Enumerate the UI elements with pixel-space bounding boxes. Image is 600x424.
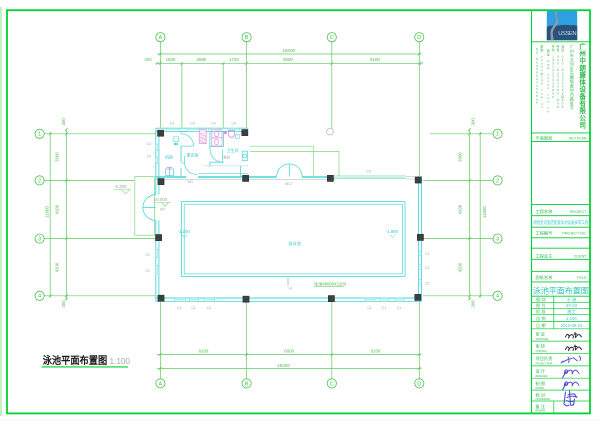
svg-text:1500: 1500 (166, 57, 176, 62)
svg-text:泳池平面布置图: 泳池平面布置图 (533, 286, 589, 296)
svg-text:更衣室: 更衣室 (187, 151, 199, 157)
svg-text:1:100: 1:100 (566, 316, 577, 321)
svg-text:C1: C1 (367, 306, 371, 310)
svg-text:州: 州 (578, 50, 586, 58)
svg-text:DRAWN: DRAWN (536, 387, 545, 390)
svg-text:4200: 4200 (55, 262, 60, 272)
svg-text:司: 司 (579, 121, 586, 129)
svg-text:康: 康 (579, 70, 586, 79)
svg-text:游泳池: 游泳池 (288, 240, 301, 247)
svg-text:18200: 18200 (277, 363, 290, 368)
svg-text:4100: 4100 (458, 204, 463, 214)
svg-text:设: 设 (579, 85, 586, 94)
svg-text:项目负责: 项目负责 (536, 355, 553, 362)
svg-text:C4: C4 (232, 122, 236, 126)
svg-text:图 别: 图 别 (536, 296, 546, 303)
svg-text:审 核: 审 核 (536, 343, 546, 350)
svg-text:D: D (417, 35, 421, 41)
svg-text:图纸名称: 图纸名称 (536, 274, 553, 281)
svg-text:4100: 4100 (55, 204, 60, 214)
svg-text:6000: 6000 (283, 57, 293, 62)
svg-text:200: 200 (61, 300, 66, 308)
svg-text:CLIENT: CLIENT (574, 254, 588, 258)
svg-text:C4: C4 (170, 122, 174, 126)
svg-text:平面图别: 平面图别 (536, 134, 553, 141)
svg-text:朗: 朗 (579, 63, 586, 72)
svg-text:11600: 11600 (482, 206, 487, 218)
svg-text:300: 300 (471, 118, 476, 126)
svg-text:1:100: 1:100 (110, 357, 131, 366)
svg-text:C2: C2 (425, 282, 429, 286)
svg-text:6100: 6100 (371, 349, 381, 354)
svg-text:KEY PLAN: KEY PLAN (569, 136, 587, 140)
svg-text:公: 公 (579, 114, 586, 122)
svg-text:C1: C1 (397, 306, 401, 310)
svg-text:6100: 6100 (370, 57, 380, 62)
svg-text:D: D (417, 381, 421, 387)
svg-text:M2: M2 (160, 207, 165, 211)
svg-text:淋浴: 淋浴 (223, 155, 230, 160)
svg-text:设 计: 设 计 (536, 368, 546, 375)
svg-text:号: 号 (570, 105, 574, 110)
svg-text:±0.000: ±0.000 (154, 197, 168, 202)
svg-text:1720: 1720 (229, 57, 239, 62)
svg-text:C1: C1 (191, 306, 195, 310)
svg-text:施工: 施工 (567, 308, 575, 315)
svg-text:备 注: 备 注 (536, 403, 546, 410)
svg-text:C: C (330, 381, 334, 387)
svg-text:水 施: 水 施 (567, 296, 577, 303)
svg-text:C1: C1 (382, 306, 386, 310)
svg-text:3300: 3300 (55, 152, 60, 162)
svg-text:B: B (245, 381, 249, 387)
svg-text:DESIGNED: DESIGNED (536, 376, 548, 378)
svg-text:ZY-03: ZY-03 (566, 303, 578, 308)
svg-text:6000: 6000 (284, 349, 294, 354)
svg-text:11600: 11600 (45, 206, 50, 218)
svg-text:CHECKED: CHECKED (536, 351, 548, 353)
svg-text:广: 广 (579, 42, 586, 51)
svg-text:A: A (159, 35, 163, 41)
svg-text:C1: C1 (177, 306, 181, 310)
svg-text:C2: C2 (425, 252, 429, 256)
svg-text:PROJECT NO.: PROJECT NO. (562, 232, 586, 236)
svg-text:1: 1 (38, 132, 41, 138)
svg-text:2013-09-24: 2013-09-24 (561, 323, 583, 328)
svg-text:C3: C3 (147, 142, 151, 146)
svg-text:机房: 机房 (165, 153, 173, 159)
svg-text:A: A (159, 381, 163, 387)
svg-text:4200: 4200 (458, 262, 463, 272)
svg-text:APPROVED: APPROVED (536, 338, 549, 341)
svg-text:M1: M1 (188, 180, 193, 184)
svg-text:C3: C3 (147, 155, 151, 159)
svg-text:3300: 3300 (458, 152, 463, 162)
svg-text:C1: C1 (207, 306, 211, 310)
svg-text:卫生间: 卫生间 (227, 147, 239, 153)
svg-text:200: 200 (144, 57, 152, 62)
svg-text:中: 中 (579, 56, 586, 65)
svg-text:限: 限 (579, 106, 586, 115)
svg-text:PROJECT MGR: PROJECT MGR (536, 364, 553, 366)
svg-text:备: 备 (578, 92, 586, 101)
svg-text:TITLE: TITLE (577, 276, 587, 280)
svg-text:4: 4 (496, 294, 499, 300)
svg-text:阶 段: 阶 段 (536, 308, 546, 315)
svg-text:审 定: 审 定 (536, 330, 546, 337)
svg-text:C2: C2 (425, 266, 429, 270)
svg-text:C4: C4 (211, 122, 215, 126)
svg-text:L4: L4 (289, 287, 293, 291)
svg-text:C4: C4 (190, 122, 194, 126)
svg-text:比 例: 比 例 (536, 315, 546, 322)
svg-text:C: C (330, 35, 334, 41)
svg-text:体: 体 (579, 78, 586, 87)
svg-text:3: 3 (38, 237, 41, 243)
svg-text:2880: 2880 (197, 57, 207, 62)
svg-text:6100: 6100 (199, 349, 209, 354)
svg-text:2: 2 (38, 178, 41, 184)
svg-text:工程业主: 工程业主 (536, 252, 553, 259)
svg-text:PROJECT: PROJECT (570, 210, 588, 214)
svg-text:-0.300: -0.300 (114, 184, 127, 189)
svg-text:PROOFREAD: PROOFREAD (536, 398, 551, 401)
svg-text:校 对: 校 对 (536, 392, 546, 399)
svg-text:1: 1 (496, 132, 499, 138)
svg-text:制 图: 制 图 (536, 380, 546, 387)
svg-text:工程编号: 工程编号 (536, 230, 553, 237)
svg-text:C2: C2 (145, 253, 149, 257)
svg-text:B: B (245, 35, 249, 41)
svg-text:C2: C2 (145, 269, 149, 273)
svg-text:300: 300 (61, 118, 66, 126)
svg-text:USSEN: USSEN (558, 31, 576, 37)
svg-text:2: 2 (496, 178, 499, 184)
svg-text:-1.800: -1.800 (386, 229, 399, 234)
svg-text:S4: S4 (174, 142, 178, 146)
svg-text:MC7: MC7 (285, 182, 293, 186)
svg-text:18200: 18200 (282, 48, 295, 53)
svg-text:3: 3 (496, 237, 499, 243)
svg-text:REMARK: REMARK (536, 410, 546, 413)
svg-text:4: 4 (38, 294, 41, 300)
svg-text:泳池平面布置图: 泳池平面布置图 (43, 354, 108, 367)
svg-text:翔悦皇冠酒店配套泳池设备安装工程: 翔悦皇冠酒店配套泳池设备安装工程 (533, 219, 588, 226)
svg-text:工程名称: 工程名称 (536, 208, 553, 215)
svg-text:200: 200 (471, 300, 476, 308)
svg-text:有: 有 (579, 99, 586, 108)
svg-text:-1.200: -1.200 (178, 229, 191, 234)
svg-text:C5: C5 (367, 169, 371, 173)
